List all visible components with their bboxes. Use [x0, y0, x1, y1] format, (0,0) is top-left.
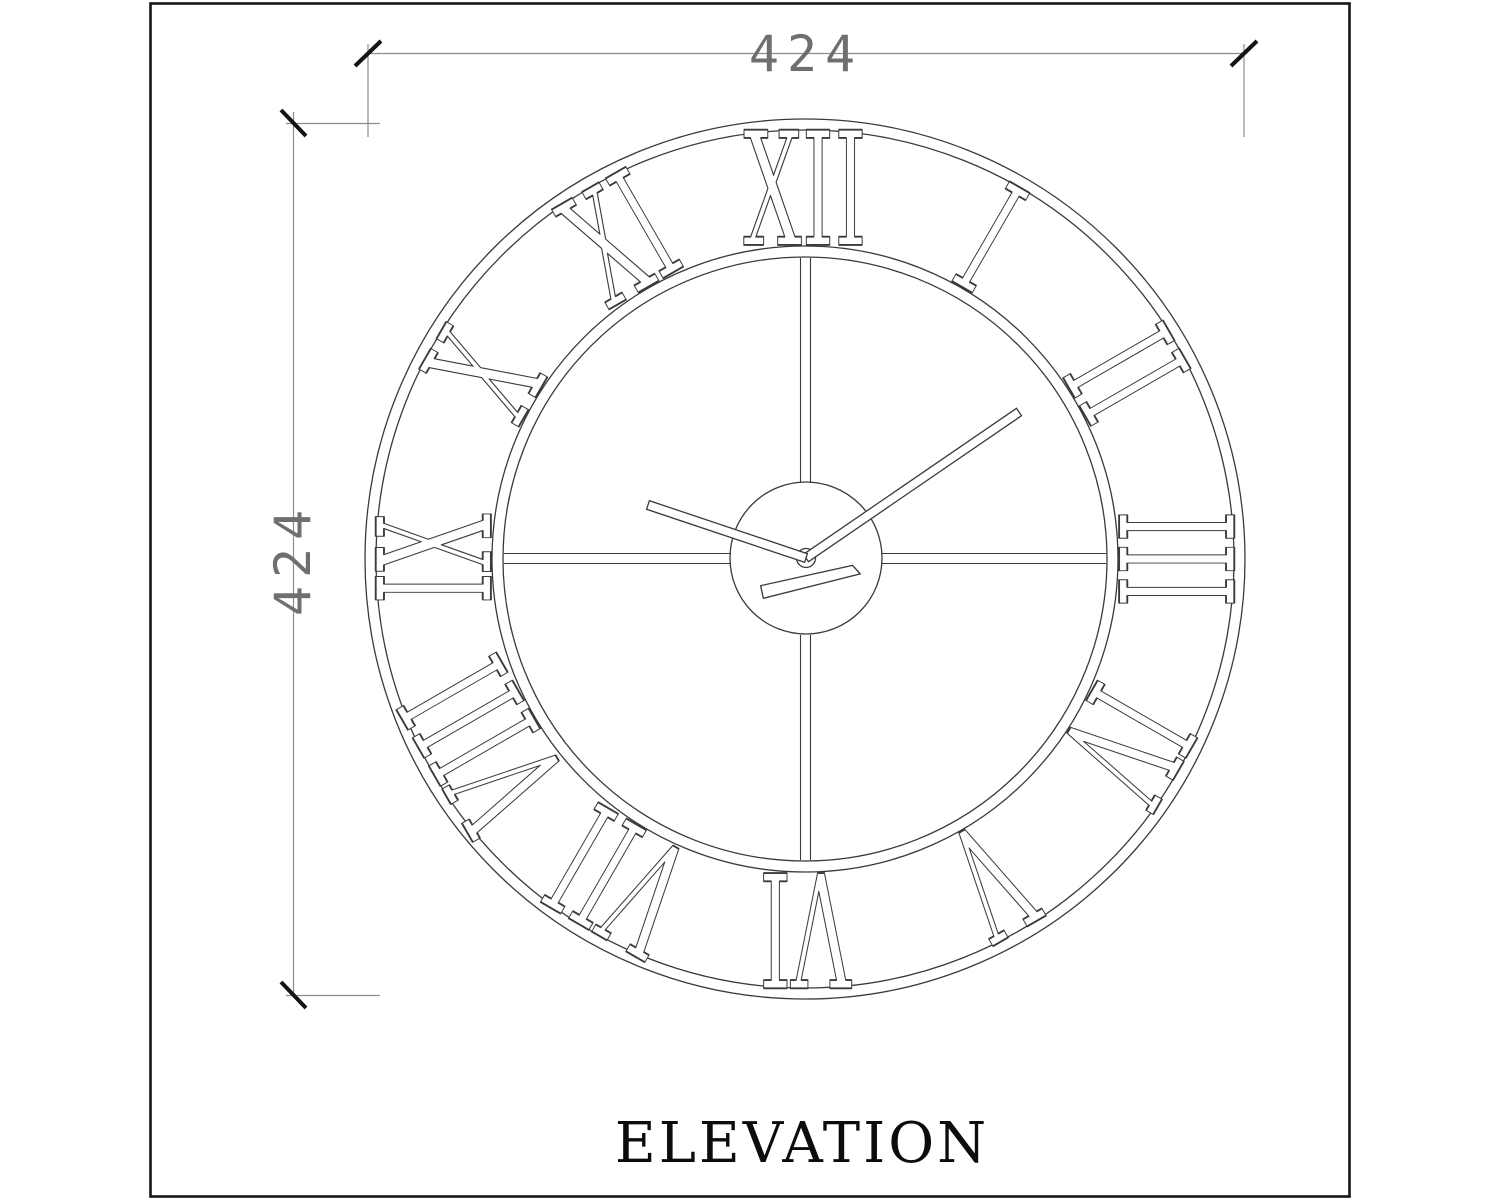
minute-hand	[804, 408, 1022, 561]
drawing-sheet: 424 424 IIIIIIIVVVIVIIVIIIIXXXI	[0, 0, 1500, 1200]
view-title: ELEVATION	[615, 1111, 989, 1176]
dimension-width-value: 424	[749, 25, 863, 83]
roman-numeral-III: III	[1081, 510, 1265, 607]
clock: IIIIIIIVVVIVIIVIIIIXXXIXII	[344, 98, 1266, 1020]
roman-numeral-XII: XII	[743, 98, 866, 282]
roman-numeral-VII: VII	[521, 767, 722, 990]
roman-numeral-XI: XI	[535, 137, 706, 342]
second-hand	[761, 565, 861, 598]
roman-numeral-IX: IX	[344, 513, 528, 604]
roman-numeral-IV: IV	[1021, 657, 1227, 830]
dimension-height-value: 424	[264, 502, 322, 616]
roman-numeral-II: II	[1028, 300, 1220, 448]
roman-numeral-VI: VI	[759, 835, 852, 1019]
roman-numeral-I: I	[929, 152, 1049, 328]
clock-elevation-drawing: 424 424 IIIIIIIVVVIVIIVIIIIXXXI	[0, 0, 1500, 1200]
clock-hands	[647, 408, 1022, 598]
roman-numeral-VIII: VIII	[367, 629, 606, 858]
